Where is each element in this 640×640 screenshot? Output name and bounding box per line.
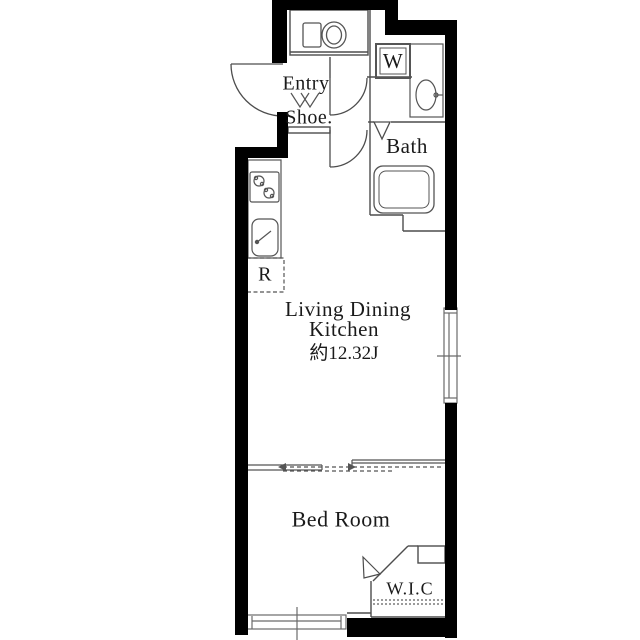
room-label-refrigerator: R — [258, 265, 272, 286]
room-size-ldk: 約12.32J — [309, 344, 378, 364]
wic-door-icon — [363, 557, 380, 578]
floor-plan: Entry Shoe. W Bath Living Dining Kitchen… — [0, 0, 640, 640]
stove-icon — [250, 172, 279, 202]
toilet-icon — [303, 22, 346, 48]
kitchen-sink-icon — [252, 219, 278, 256]
room-label-entry: Entry — [283, 74, 330, 95]
sliding-door-icon — [240, 460, 445, 471]
room-label-ldk-line2: Kitchen — [309, 318, 379, 340]
bathroom-sink-icon — [410, 44, 443, 117]
room-label-shoe: Shoe. — [285, 108, 333, 129]
room-label-wic: W.I.C — [386, 580, 433, 599]
room-label-bath: Bath — [386, 135, 428, 157]
room-label-bedroom: Bed Room — [292, 507, 391, 530]
room-label-washer: W — [383, 50, 403, 72]
entry-door-icon — [231, 64, 283, 116]
window-right-icon — [437, 308, 461, 403]
hall-door-icon — [330, 78, 367, 115]
shoe-shelf-icon — [291, 93, 319, 107]
wic-hanger-rail — [373, 600, 444, 604]
bathtub-icon — [374, 166, 434, 213]
ldk-door-icon — [330, 130, 367, 167]
kitchen-counter — [248, 160, 281, 258]
window-bottom-icon — [247, 607, 346, 640]
